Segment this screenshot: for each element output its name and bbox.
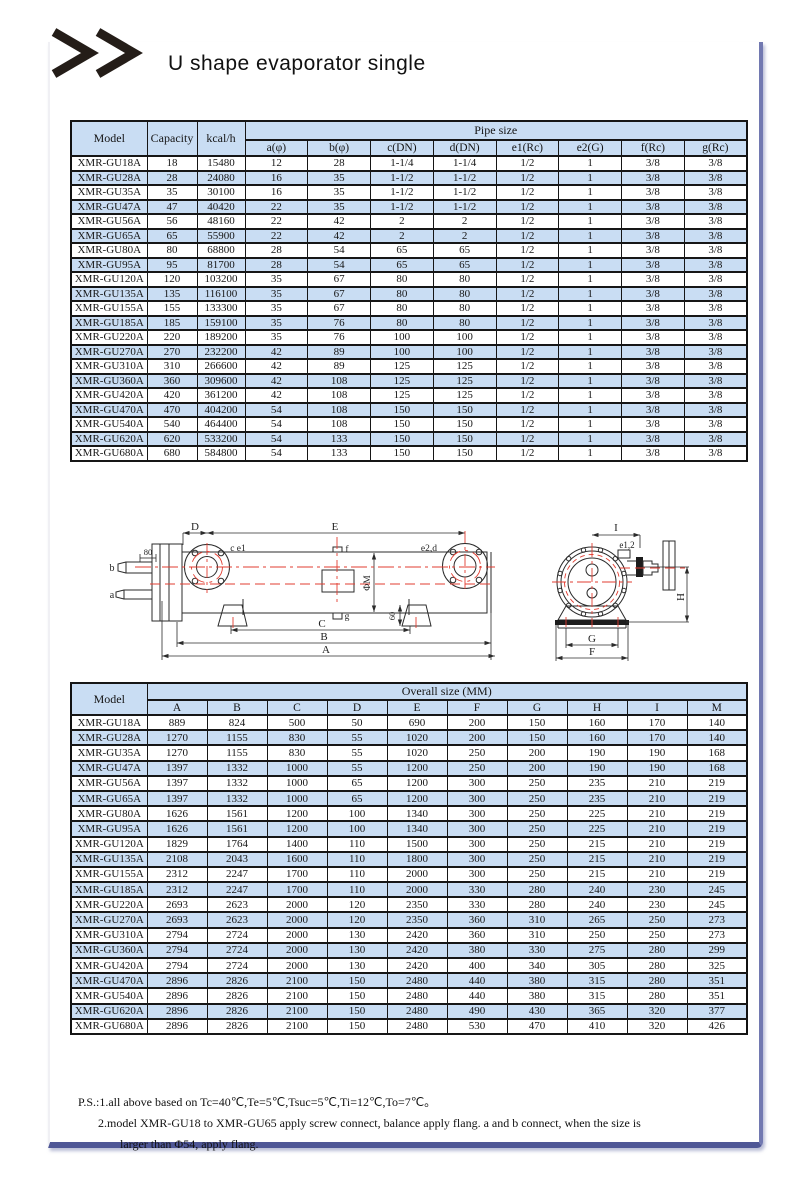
value-cell: 1 — [559, 272, 622, 287]
value-cell: 300 — [447, 867, 507, 882]
value-cell: 1/2 — [496, 417, 559, 432]
value-cell: 55 — [327, 761, 387, 776]
value-cell: 65 — [327, 791, 387, 806]
value-cell: 16 — [245, 185, 308, 200]
value-cell: 1 — [559, 330, 622, 345]
value-cell: 380 — [447, 943, 507, 958]
value-cell: 3/8 — [684, 359, 747, 374]
value-cell: 219 — [687, 806, 747, 821]
value-cell: 80 — [371, 272, 434, 287]
value-cell: 1/2 — [496, 229, 559, 244]
value-cell: 125 — [433, 359, 496, 374]
value-cell: 2247 — [207, 867, 267, 882]
port-label-a: a — [110, 590, 115, 601]
value-cell: 330 — [507, 943, 567, 958]
value-cell: 235 — [567, 776, 627, 791]
value-cell: 1200 — [387, 761, 447, 776]
col-header-I: I — [627, 700, 687, 715]
value-cell: 3/8 — [622, 374, 685, 389]
value-cell: 1/2 — [496, 200, 559, 215]
model-cell: XMR-GU135A — [71, 287, 147, 302]
table-row: XMR-GU470A470404200541081501501/213/83/8 — [71, 403, 747, 418]
col-header-C: C — [267, 700, 327, 715]
table-row: XMR-GU120A182917641400110150030025021521… — [71, 837, 747, 852]
col-header-kcal: kcal/h — [197, 121, 245, 156]
value-cell: 1200 — [387, 776, 447, 791]
value-cell: 100 — [433, 330, 496, 345]
value-cell: 81700 — [197, 258, 245, 273]
col-header-d: d(DN) — [433, 140, 496, 156]
value-cell: 3/8 — [622, 403, 685, 418]
table-row: XMR-GU420A279427242000130242040034030528… — [71, 958, 747, 973]
value-cell: 3/8 — [622, 301, 685, 316]
value-cell: 1/2 — [496, 403, 559, 418]
value-cell: 55900 — [197, 229, 245, 244]
value-cell: 1 — [559, 229, 622, 244]
value-cell: 1700 — [267, 867, 327, 882]
value-cell: 330 — [447, 897, 507, 912]
value-cell: 280 — [507, 882, 567, 897]
value-cell: 215 — [567, 852, 627, 867]
value-cell: 133300 — [197, 301, 245, 316]
value-cell: 42 — [245, 359, 308, 374]
label-e2-d: e2,d — [421, 544, 437, 554]
value-cell: 160 — [567, 730, 627, 745]
value-cell: 1-1/4 — [433, 156, 496, 171]
model-cell: XMR-GU540A — [71, 417, 147, 432]
value-cell: 351 — [687, 988, 747, 1003]
table-row: XMR-GU47A1397133210005512002502001901901… — [71, 761, 747, 776]
value-cell: 65 — [371, 258, 434, 273]
value-cell: 1/2 — [496, 330, 559, 345]
page-title: U shape evaporator single — [168, 52, 426, 76]
value-cell: 100 — [327, 821, 387, 836]
value-cell: 3/8 — [622, 359, 685, 374]
value-cell: 440 — [447, 973, 507, 988]
value-cell: 110 — [327, 852, 387, 867]
value-cell: 250 — [507, 791, 567, 806]
value-cell: 225 — [567, 821, 627, 836]
port-label-b: b — [110, 563, 115, 574]
value-cell: 80 — [433, 301, 496, 316]
col-header-b: b(φ) — [308, 140, 371, 156]
value-cell: 1000 — [267, 776, 327, 791]
value-cell: 250 — [507, 867, 567, 882]
model-cell: XMR-GU420A — [71, 958, 147, 973]
side-view-body — [116, 544, 491, 627]
value-cell: 250 — [507, 806, 567, 821]
table-row: XMR-GU80A1626156112001001340300250225210… — [71, 806, 747, 821]
value-cell: 3/8 — [622, 229, 685, 244]
value-cell: 120 — [147, 272, 197, 287]
overall-table-header: Model Overall size (MM) A B C D E F G H … — [71, 683, 747, 715]
value-cell: 219 — [687, 821, 747, 836]
value-cell: 250 — [507, 776, 567, 791]
value-cell: 150 — [327, 988, 387, 1003]
value-cell: 2623 — [207, 897, 267, 912]
value-cell: 219 — [687, 852, 747, 867]
col-header-f: f(Rc) — [622, 140, 685, 156]
value-cell: 54 — [245, 417, 308, 432]
value-cell: 273 — [687, 912, 747, 927]
value-cell: 55 — [327, 745, 387, 760]
value-cell: 28 — [245, 243, 308, 258]
value-cell: 299 — [687, 943, 747, 958]
model-cell: XMR-GU680A — [71, 446, 147, 461]
value-cell: 1 — [559, 359, 622, 374]
model-cell: XMR-GU47A — [71, 761, 147, 776]
model-cell: XMR-GU80A — [71, 806, 147, 821]
dim-label-A: A — [322, 644, 330, 656]
value-cell: 200 — [507, 761, 567, 776]
value-cell: 35 — [308, 200, 371, 215]
value-cell: 56 — [147, 214, 197, 229]
dim-label-B: B — [320, 631, 327, 643]
value-cell: 2000 — [387, 867, 447, 882]
value-cell: 54 — [245, 432, 308, 447]
value-cell: 3/8 — [684, 417, 747, 432]
value-cell: 219 — [687, 776, 747, 791]
value-cell: 1 — [559, 258, 622, 273]
value-cell: 1155 — [207, 730, 267, 745]
overall-table-body: XMR-GU18A88982450050690200150160170140XM… — [71, 715, 747, 1034]
value-cell: 300 — [447, 852, 507, 867]
value-cell: 400 — [447, 958, 507, 973]
value-cell: 300 — [447, 806, 507, 821]
value-cell: 125 — [433, 388, 496, 403]
model-cell: XMR-GU65A — [71, 229, 147, 244]
table-row: XMR-GU80A8068800285465651/213/83/8 — [71, 243, 747, 258]
model-cell: XMR-GU185A — [71, 316, 147, 331]
value-cell: 2100 — [267, 1004, 327, 1019]
value-cell: 1/2 — [496, 359, 559, 374]
value-cell: 1200 — [267, 821, 327, 836]
value-cell: 1 — [559, 200, 622, 215]
table-row: XMR-GU540A289628262100150248044038031528… — [71, 988, 747, 1003]
value-cell: 540 — [147, 417, 197, 432]
model-cell: XMR-GU360A — [71, 374, 147, 389]
value-cell: 54 — [308, 258, 371, 273]
value-cell: 168 — [687, 745, 747, 760]
value-cell: 150 — [433, 417, 496, 432]
value-cell: 133 — [308, 446, 371, 461]
value-cell: 1/2 — [496, 301, 559, 316]
value-cell: 1 — [559, 185, 622, 200]
value-cell: 2312 — [147, 882, 207, 897]
value-cell: 250 — [567, 928, 627, 943]
model-cell: XMR-GU270A — [71, 345, 147, 360]
col-group-pipe-size: Pipe size — [245, 121, 747, 140]
overall-size-table: Model Overall size (MM) A B C D E F G H … — [70, 682, 748, 1035]
value-cell: 2000 — [267, 928, 327, 943]
value-cell: 3/8 — [622, 171, 685, 186]
value-cell: 3/8 — [684, 330, 747, 345]
value-cell: 3/8 — [684, 272, 747, 287]
value-cell: 830 — [267, 745, 327, 760]
dim-label-80: 80 — [144, 547, 153, 557]
col-header-e2: e2(G) — [559, 140, 622, 156]
table-row: XMR-GU185A185159100357680801/213/83/8 — [71, 316, 747, 331]
value-cell: 235 — [567, 791, 627, 806]
value-cell: 133 — [308, 432, 371, 447]
value-cell: 280 — [507, 897, 567, 912]
value-cell: 1-1/4 — [371, 156, 434, 171]
value-cell: 1/2 — [496, 432, 559, 447]
value-cell: 470 — [507, 1019, 567, 1034]
value-cell: 1332 — [207, 791, 267, 806]
value-cell: 490 — [447, 1004, 507, 1019]
value-cell: 2480 — [387, 1019, 447, 1034]
value-cell: 2420 — [387, 928, 447, 943]
value-cell: 16 — [245, 171, 308, 186]
value-cell: 3/8 — [684, 316, 747, 331]
value-cell: 35 — [245, 272, 308, 287]
value-cell: 35 — [245, 301, 308, 316]
value-cell: 620 — [147, 432, 197, 447]
value-cell: 500 — [267, 715, 327, 730]
value-cell: 2794 — [147, 943, 207, 958]
dim-label-60: 60 — [387, 612, 397, 621]
catalog-page: U shape evaporator single Model Capacity… — [0, 0, 800, 1198]
value-cell: 2100 — [267, 1019, 327, 1034]
value-cell: 89 — [308, 359, 371, 374]
value-cell: 2896 — [147, 1019, 207, 1034]
value-cell: 1600 — [267, 852, 327, 867]
value-cell: 2 — [371, 229, 434, 244]
value-cell: 35 — [245, 330, 308, 345]
value-cell: 1 — [559, 243, 622, 258]
value-cell: 28 — [308, 156, 371, 171]
dim-label-H: H — [675, 593, 687, 601]
value-cell: 1/2 — [496, 446, 559, 461]
value-cell: 3/8 — [684, 345, 747, 360]
value-cell: 103200 — [197, 272, 245, 287]
value-cell: 1/2 — [496, 171, 559, 186]
value-cell: 2826 — [207, 1019, 267, 1034]
value-cell: 426 — [687, 1019, 747, 1034]
table-row: XMR-GU155A231222471700110200030025021521… — [71, 867, 747, 882]
label-f: f — [345, 544, 349, 555]
value-cell: 320 — [627, 1004, 687, 1019]
value-cell: 150 — [507, 730, 567, 745]
value-cell: 140 — [687, 730, 747, 745]
table-row: XMR-GU56A1397133210006512003002502352102… — [71, 776, 747, 791]
value-cell: 2826 — [207, 973, 267, 988]
value-cell: 170 — [627, 715, 687, 730]
value-cell: 48160 — [197, 214, 245, 229]
table-row: XMR-GU310A31026660042891251251/213/83/8 — [71, 359, 747, 374]
value-cell: 2 — [433, 214, 496, 229]
value-cell: 185 — [147, 316, 197, 331]
value-cell: 280 — [627, 988, 687, 1003]
table-row: XMR-GU360A279427242000130242038033027528… — [71, 943, 747, 958]
value-cell: 3/8 — [622, 345, 685, 360]
value-cell: 2826 — [207, 988, 267, 1003]
table-row: XMR-GU185A231222471700110200033028024023… — [71, 882, 747, 897]
value-cell: 2100 — [267, 988, 327, 1003]
table-row: XMR-GU28A282408016351-1/21-1/21/213/83/8 — [71, 171, 747, 186]
value-cell: 275 — [567, 943, 627, 958]
value-cell: 309600 — [197, 374, 245, 389]
model-cell: XMR-GU270A — [71, 912, 147, 927]
value-cell: 1/2 — [496, 214, 559, 229]
value-cell: 18 — [147, 156, 197, 171]
value-cell: 1-1/2 — [433, 171, 496, 186]
value-cell: 2043 — [207, 852, 267, 867]
dim-label-C: C — [318, 618, 325, 630]
value-cell: 1700 — [267, 882, 327, 897]
value-cell: 30100 — [197, 185, 245, 200]
value-cell: 2794 — [147, 958, 207, 973]
value-cell: 280 — [627, 973, 687, 988]
value-cell: 305 — [567, 958, 627, 973]
value-cell: 530 — [447, 1019, 507, 1034]
value-cell: 2420 — [387, 958, 447, 973]
col-header-e1: e1(Rc) — [496, 140, 559, 156]
value-cell: 150 — [433, 403, 496, 418]
value-cell: 250 — [447, 761, 507, 776]
value-cell: 250 — [447, 745, 507, 760]
table-row: XMR-GU95A1626156112001001340300250225210… — [71, 821, 747, 836]
value-cell: 1/2 — [496, 287, 559, 302]
value-cell: 190 — [567, 761, 627, 776]
value-cell: 35 — [308, 171, 371, 186]
value-cell: 420 — [147, 388, 197, 403]
value-cell: 150 — [371, 417, 434, 432]
value-cell: 54 — [245, 403, 308, 418]
value-cell: 377 — [687, 1004, 747, 1019]
value-cell: 1 — [559, 374, 622, 389]
col-header-G: G — [507, 700, 567, 715]
table-row: XMR-GU540A540464400541081501501/213/83/8 — [71, 417, 747, 432]
value-cell: 120 — [327, 912, 387, 927]
table-row: XMR-GU220A22018920035761001001/213/83/8 — [71, 330, 747, 345]
value-cell: 110 — [327, 867, 387, 882]
value-cell: 325 — [687, 958, 747, 973]
value-cell: 430 — [507, 1004, 567, 1019]
value-cell: 65 — [371, 243, 434, 258]
value-cell: 76 — [308, 316, 371, 331]
table-row: XMR-GU135A210820431600110180030025021521… — [71, 852, 747, 867]
value-cell: 189200 — [197, 330, 245, 345]
model-cell: XMR-GU620A — [71, 432, 147, 447]
value-cell: 3/8 — [684, 185, 747, 200]
value-cell: 200 — [447, 715, 507, 730]
value-cell: 1 — [559, 171, 622, 186]
value-cell: 265 — [567, 912, 627, 927]
value-cell: 150 — [433, 432, 496, 447]
value-cell: 150 — [371, 432, 434, 447]
value-cell: 1 — [559, 316, 622, 331]
value-cell: 200 — [507, 745, 567, 760]
value-cell: 3/8 — [684, 287, 747, 302]
double-chevron-icon — [46, 20, 148, 89]
value-cell: 280 — [627, 943, 687, 958]
value-cell: 2000 — [267, 897, 327, 912]
value-cell: 1340 — [387, 821, 447, 836]
col-header-B: B — [207, 700, 267, 715]
value-cell: 2000 — [267, 912, 327, 927]
value-cell: 680 — [147, 446, 197, 461]
value-cell: 108 — [308, 374, 371, 389]
value-cell: 3/8 — [622, 417, 685, 432]
value-cell: 464400 — [197, 417, 245, 432]
value-cell: 351 — [687, 973, 747, 988]
dim-label-D: D — [191, 521, 199, 533]
pipe-table-body: XMR-GU18A181548012281-1/41-1/41/213/83/8… — [71, 156, 747, 461]
value-cell: 160 — [567, 715, 627, 730]
value-cell: 190 — [627, 761, 687, 776]
value-cell: 1397 — [147, 776, 207, 791]
value-cell: 361200 — [197, 388, 245, 403]
value-cell: 340 — [507, 958, 567, 973]
value-cell: 3/8 — [622, 258, 685, 273]
model-cell: XMR-GU310A — [71, 359, 147, 374]
value-cell: 250 — [627, 912, 687, 927]
value-cell: 3/8 — [684, 229, 747, 244]
value-cell: 135 — [147, 287, 197, 302]
value-cell: 1000 — [267, 761, 327, 776]
value-cell: 210 — [627, 821, 687, 836]
value-cell: 1000 — [267, 791, 327, 806]
value-cell: 2247 — [207, 882, 267, 897]
value-cell: 219 — [687, 867, 747, 882]
value-cell: 1626 — [147, 821, 207, 836]
value-cell: 2350 — [387, 897, 447, 912]
value-cell: 210 — [627, 837, 687, 852]
value-cell: 125 — [433, 374, 496, 389]
value-cell: 889 — [147, 715, 207, 730]
value-cell: 100 — [327, 806, 387, 821]
value-cell: 67 — [308, 272, 371, 287]
value-cell: 270 — [147, 345, 197, 360]
value-cell: 1 — [559, 214, 622, 229]
value-cell: 300 — [447, 821, 507, 836]
value-cell: 1626 — [147, 806, 207, 821]
model-cell: XMR-GU35A — [71, 745, 147, 760]
value-cell: 150 — [371, 403, 434, 418]
model-cell: XMR-GU540A — [71, 988, 147, 1003]
model-cell: XMR-GU155A — [71, 867, 147, 882]
value-cell: 3/8 — [684, 432, 747, 447]
value-cell: 240 — [567, 882, 627, 897]
value-cell: 3/8 — [622, 272, 685, 287]
footnote-line-1: P.S.:1.all above based on Tc=40℃,Te=5℃,T… — [78, 1092, 641, 1113]
value-cell: 1/2 — [496, 258, 559, 273]
value-cell: 50 — [327, 715, 387, 730]
value-cell: 1829 — [147, 837, 207, 852]
value-cell: 2000 — [267, 943, 327, 958]
value-cell: 35 — [245, 287, 308, 302]
value-cell: 232200 — [197, 345, 245, 360]
value-cell: 1/2 — [496, 156, 559, 171]
value-cell: 159100 — [197, 316, 245, 331]
value-cell: 67 — [308, 287, 371, 302]
value-cell: 1561 — [207, 821, 267, 836]
value-cell: 3/8 — [684, 214, 747, 229]
dim-label-F: F — [589, 646, 595, 658]
value-cell: 1/2 — [496, 345, 559, 360]
value-cell: 584800 — [197, 446, 245, 461]
table-row: XMR-GU35A1270115583055102025020019019016… — [71, 745, 747, 760]
value-cell: 250 — [627, 928, 687, 943]
value-cell: 3/8 — [622, 388, 685, 403]
value-cell: 3/8 — [684, 243, 747, 258]
value-cell: 1332 — [207, 776, 267, 791]
value-cell: 89 — [308, 345, 371, 360]
value-cell: 1397 — [147, 791, 207, 806]
value-cell: 1 — [559, 432, 622, 447]
